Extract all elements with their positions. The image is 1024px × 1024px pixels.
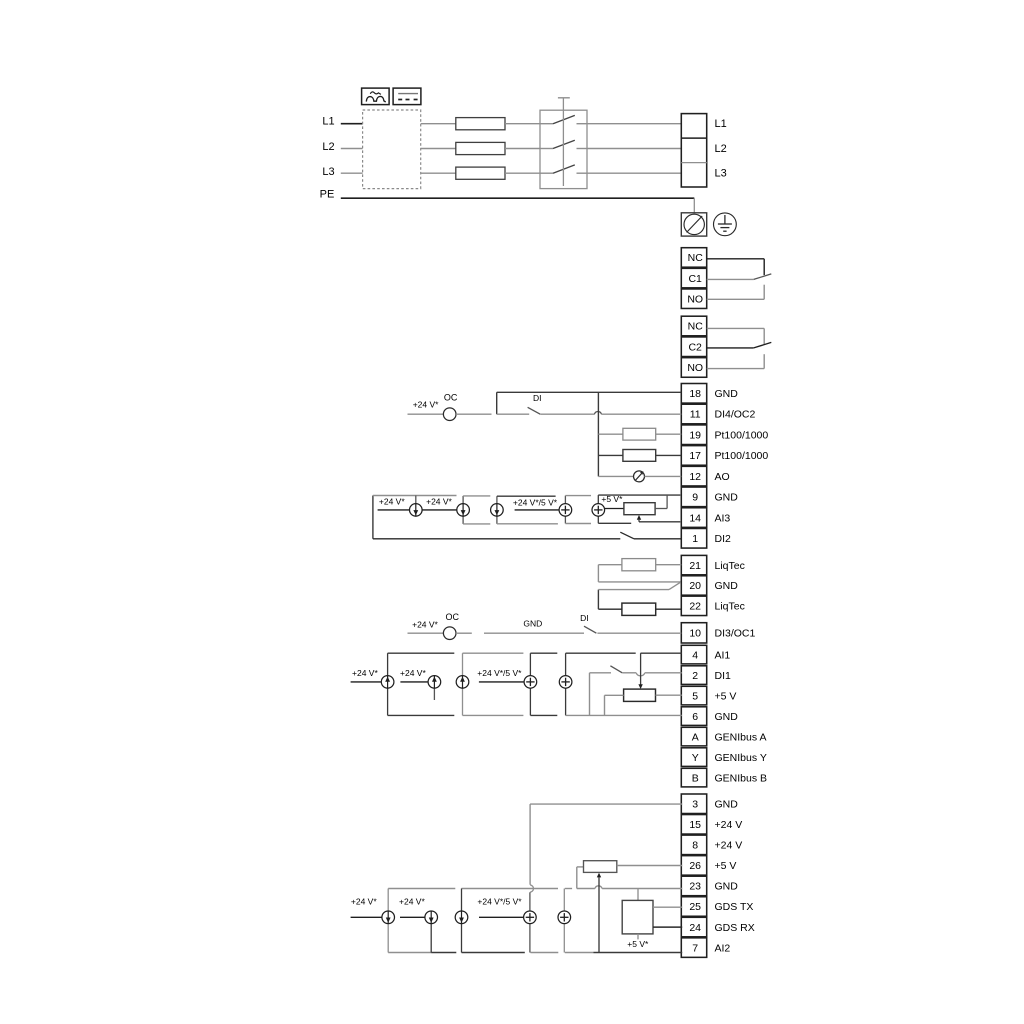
svg-text:B: B bbox=[692, 772, 699, 784]
svg-text:+24 V*/5 V*: +24 V*/5 V* bbox=[477, 668, 522, 678]
svg-text:19: 19 bbox=[689, 429, 701, 441]
svg-text:DI: DI bbox=[580, 613, 589, 623]
svg-text:NO: NO bbox=[687, 293, 703, 305]
svg-text:DI3/OC1: DI3/OC1 bbox=[715, 628, 756, 640]
svg-text:+24 V*: +24 V* bbox=[400, 668, 426, 678]
svg-text:+24 V*: +24 V* bbox=[413, 400, 439, 410]
svg-text:2: 2 bbox=[692, 670, 698, 682]
svg-text:14: 14 bbox=[689, 512, 701, 524]
svg-text:+24 V*: +24 V* bbox=[351, 896, 377, 906]
svg-text:+5 V*: +5 V* bbox=[601, 494, 623, 504]
svg-text:GND: GND bbox=[715, 881, 739, 893]
svg-text:AO: AO bbox=[715, 471, 730, 483]
svg-text:GND: GND bbox=[715, 711, 739, 723]
svg-text:L2: L2 bbox=[715, 143, 727, 155]
svg-text:LiqTec: LiqTec bbox=[715, 601, 745, 613]
svg-text:L3: L3 bbox=[322, 166, 334, 178]
svg-text:21: 21 bbox=[689, 560, 701, 572]
svg-text:+24 V*: +24 V* bbox=[399, 896, 425, 906]
svg-text:GND: GND bbox=[523, 619, 542, 629]
svg-text:8: 8 bbox=[692, 840, 698, 852]
svg-text:+24 V*/5 V*: +24 V*/5 V* bbox=[477, 896, 522, 906]
svg-text:7: 7 bbox=[692, 942, 698, 954]
svg-text:PE: PE bbox=[320, 188, 335, 200]
svg-text:5: 5 bbox=[692, 690, 698, 702]
svg-text:+24 V*: +24 V* bbox=[412, 620, 438, 630]
svg-text:25: 25 bbox=[689, 901, 701, 913]
svg-text:GENIbus B: GENIbus B bbox=[715, 772, 768, 784]
svg-text:Pt100/1000: Pt100/1000 bbox=[715, 429, 769, 441]
svg-text:L1: L1 bbox=[715, 118, 727, 130]
svg-text:+24 V*/5 V*: +24 V*/5 V* bbox=[513, 497, 558, 507]
svg-text:23: 23 bbox=[689, 881, 701, 893]
svg-text:12: 12 bbox=[689, 471, 701, 483]
svg-text:L3: L3 bbox=[715, 167, 727, 179]
svg-text:+5 V*: +5 V* bbox=[627, 939, 649, 949]
svg-text:22: 22 bbox=[689, 601, 701, 613]
svg-text:15: 15 bbox=[689, 819, 701, 831]
svg-text:+24 V: +24 V bbox=[715, 840, 743, 852]
svg-text:+24 V*: +24 V* bbox=[352, 668, 378, 678]
svg-text:OC: OC bbox=[446, 612, 460, 622]
svg-text:6: 6 bbox=[692, 711, 698, 723]
svg-text:GENIbus Y: GENIbus Y bbox=[715, 752, 767, 764]
svg-text:L1: L1 bbox=[322, 116, 334, 128]
svg-text:+24 V*: +24 V* bbox=[426, 497, 452, 507]
svg-text:+5 V: +5 V bbox=[715, 690, 737, 702]
svg-text:+5 V: +5 V bbox=[715, 860, 737, 872]
svg-text:GND: GND bbox=[715, 388, 739, 400]
svg-text:Y: Y bbox=[692, 752, 699, 764]
svg-text:NC: NC bbox=[688, 252, 704, 264]
svg-text:AI1: AI1 bbox=[715, 649, 731, 661]
svg-text:11: 11 bbox=[690, 409, 701, 421]
svg-text:AI2: AI2 bbox=[715, 942, 731, 954]
svg-text:24: 24 bbox=[689, 922, 701, 934]
svg-text:9: 9 bbox=[692, 492, 698, 504]
svg-text:C1: C1 bbox=[688, 273, 702, 285]
svg-text:20: 20 bbox=[689, 580, 701, 592]
svg-text:GDS RX: GDS RX bbox=[715, 922, 755, 934]
svg-text:18: 18 bbox=[689, 388, 701, 400]
svg-text:AI3: AI3 bbox=[715, 512, 731, 524]
svg-text:DI4/OC2: DI4/OC2 bbox=[715, 409, 756, 421]
svg-text:C2: C2 bbox=[688, 341, 702, 353]
svg-text:DI2: DI2 bbox=[715, 533, 732, 545]
svg-text:GDS TX: GDS TX bbox=[715, 901, 754, 913]
svg-text:A: A bbox=[692, 731, 699, 743]
svg-text:DI: DI bbox=[533, 393, 542, 403]
svg-text:GND: GND bbox=[715, 580, 739, 592]
svg-text:NC: NC bbox=[688, 321, 704, 333]
svg-text:3: 3 bbox=[692, 798, 698, 810]
svg-text:17: 17 bbox=[689, 450, 701, 462]
svg-text:1: 1 bbox=[692, 533, 698, 545]
svg-text:DI1: DI1 bbox=[715, 670, 732, 682]
svg-text:OC: OC bbox=[444, 392, 458, 402]
svg-text:GND: GND bbox=[715, 492, 739, 504]
svg-text:LiqTec: LiqTec bbox=[715, 560, 745, 572]
svg-text:GENIbus A: GENIbus A bbox=[715, 731, 767, 743]
svg-text:+24 V*: +24 V* bbox=[379, 497, 405, 507]
svg-text:4: 4 bbox=[692, 649, 698, 661]
svg-text:L2: L2 bbox=[322, 141, 334, 153]
svg-text:Pt100/1000: Pt100/1000 bbox=[715, 450, 769, 462]
svg-text:26: 26 bbox=[689, 860, 701, 872]
svg-text:GND: GND bbox=[715, 798, 739, 810]
svg-text:NO: NO bbox=[687, 362, 703, 374]
svg-text:+24 V: +24 V bbox=[715, 819, 743, 831]
svg-text:10: 10 bbox=[689, 628, 701, 640]
